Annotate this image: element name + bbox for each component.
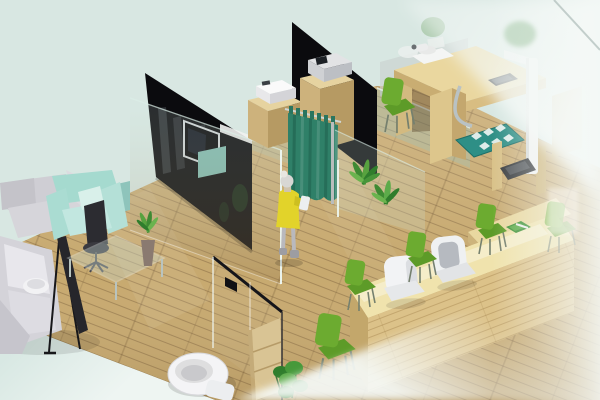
person-boot [290,250,299,258]
person-boot [279,248,287,255]
person-hair-bun [281,171,288,178]
render-canvas [0,0,600,400]
person-dress [276,189,300,229]
glass-plant-reflection [232,184,248,212]
isometric-interior-render [0,0,600,400]
person-shadow [275,259,303,267]
glass-plant-reflection [219,202,229,222]
hazy-fixture [548,188,578,234]
curtain-pole [331,122,334,204]
white-bowl [27,279,45,289]
privacy-curtain [285,106,341,204]
hazy-plant [504,21,536,47]
